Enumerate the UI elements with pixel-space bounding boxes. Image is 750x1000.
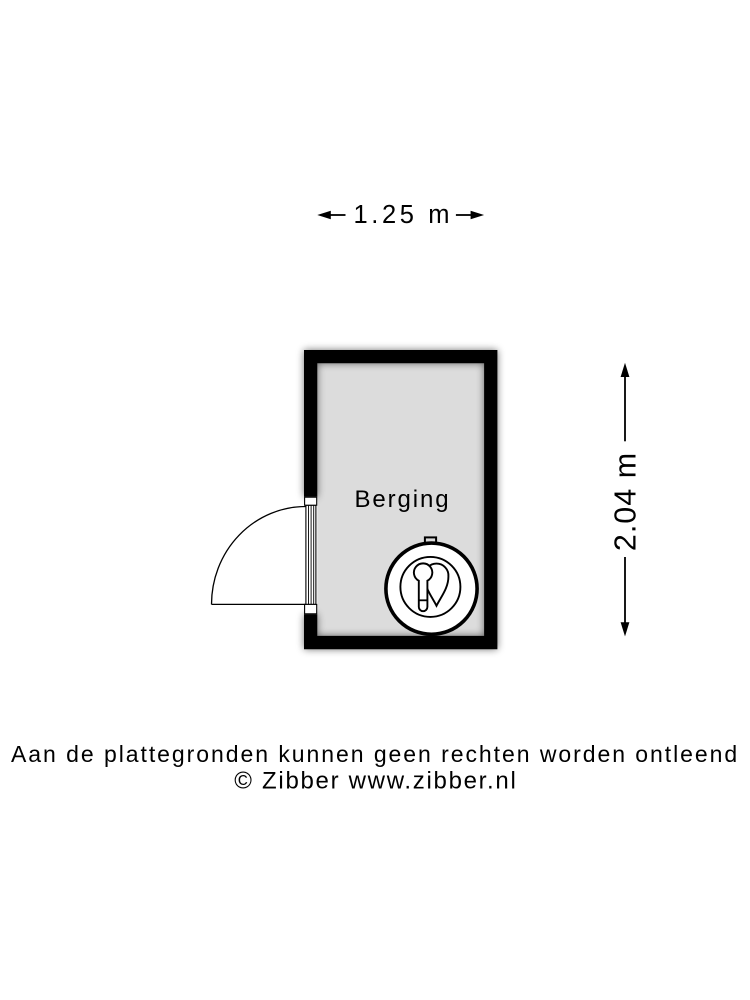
svg-text:2.04 m: 2.04 m (609, 452, 643, 551)
svg-text:© Zibber www.zibber.nl: © Zibber www.zibber.nl (234, 768, 517, 795)
svg-text:Berging: Berging (354, 486, 450, 513)
svg-text:Aan de plattegronden kunnen ge: Aan de plattegronden kunnen geen rechten… (11, 741, 739, 767)
svg-text:1.25 m: 1.25 m (354, 201, 454, 229)
